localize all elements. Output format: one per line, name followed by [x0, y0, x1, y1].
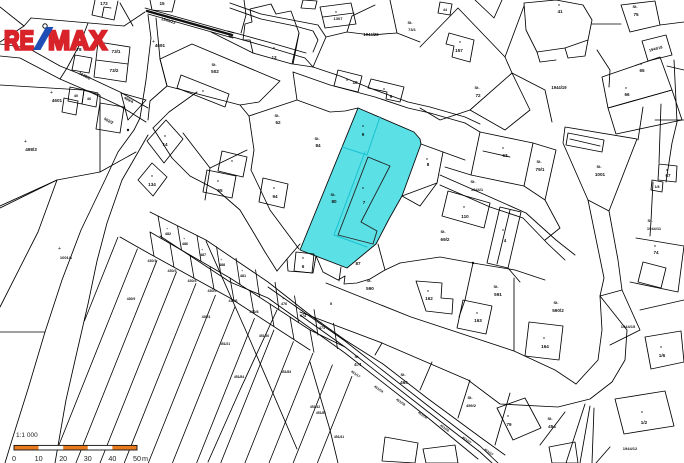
- svg-text:St.: St.: [467, 395, 472, 400]
- svg-text:St.: St.: [632, 4, 637, 9]
- svg-text:591: 591: [494, 292, 502, 297]
- svg-text:73/1: 73/1: [408, 27, 417, 32]
- svg-text:6: 6: [302, 264, 305, 269]
- svg-text:4: 4: [504, 238, 507, 243]
- svg-text:St.: St.: [647, 218, 652, 223]
- svg-text:65: 65: [639, 68, 645, 73]
- svg-text:430/1: 430/1: [148, 259, 157, 263]
- svg-text:474: 474: [300, 314, 307, 318]
- svg-text:75: 75: [633, 12, 639, 17]
- svg-text:40: 40: [108, 454, 116, 463]
- svg-text:10: 10: [352, 80, 358, 85]
- svg-text:St.: St.: [440, 229, 445, 234]
- svg-text:St.: St.: [470, 179, 475, 184]
- svg-text:St.: St.: [366, 278, 371, 283]
- svg-text:590/2: 590/2: [552, 308, 564, 313]
- svg-text:66: 66: [624, 92, 630, 97]
- svg-text:46: 46: [87, 97, 91, 101]
- svg-text:St.: St.: [596, 164, 601, 169]
- svg-text:63: 63: [502, 153, 508, 158]
- svg-text:430/4: 430/4: [202, 315, 211, 319]
- svg-text:162: 162: [425, 296, 433, 301]
- svg-text:1/6: 1/6: [659, 353, 666, 358]
- svg-text:St.: St.: [493, 284, 498, 289]
- svg-text:486: 486: [182, 242, 188, 246]
- svg-text:+: +: [24, 139, 27, 145]
- svg-text:482: 482: [165, 232, 171, 236]
- svg-text:55: 55: [217, 188, 223, 193]
- svg-text:1/8: 1/8: [655, 185, 660, 189]
- svg-text:4691: 4691: [155, 43, 166, 48]
- svg-text:m: m: [142, 454, 148, 463]
- svg-text:St.: St.: [274, 113, 279, 118]
- svg-text:RE: RE: [4, 26, 34, 56]
- svg-text:MAX: MAX: [48, 26, 107, 56]
- svg-text:164: 164: [541, 344, 549, 349]
- svg-text:471: 471: [319, 326, 325, 330]
- svg-text:87: 87: [355, 261, 361, 266]
- svg-text:13: 13: [271, 55, 277, 60]
- svg-text:451/21: 451/21: [220, 342, 230, 346]
- svg-text:69/2: 69/2: [441, 237, 450, 242]
- svg-text:163: 163: [474, 318, 482, 323]
- svg-text:471: 471: [354, 362, 362, 367]
- svg-text:451/84: 451/84: [234, 375, 244, 379]
- svg-text:+: +: [152, 39, 155, 45]
- svg-text:84: 84: [315, 143, 321, 148]
- svg-text:430/8: 430/8: [250, 310, 259, 314]
- svg-text:172: 172: [100, 1, 108, 6]
- svg-text:74: 74: [653, 250, 659, 255]
- svg-text:St.: St.: [407, 20, 412, 25]
- svg-text:9: 9: [390, 94, 393, 99]
- svg-text:41: 41: [557, 9, 563, 14]
- svg-text:14: 14: [162, 142, 168, 147]
- svg-text:1944/12: 1944/12: [623, 446, 638, 451]
- svg-text:73/2: 73/2: [110, 68, 119, 73]
- svg-text:St.: St.: [354, 354, 359, 359]
- svg-text:8: 8: [427, 162, 430, 167]
- svg-text:465: 465: [400, 380, 408, 385]
- svg-text:451/42: 451/42: [310, 405, 320, 409]
- svg-text:80: 80: [331, 199, 337, 204]
- svg-text:44: 44: [443, 8, 447, 12]
- svg-text:134: 134: [148, 182, 156, 187]
- svg-text:0: 0: [12, 454, 16, 463]
- svg-text:488: 488: [219, 263, 225, 267]
- svg-text:40: 40: [74, 94, 78, 98]
- svg-text:476: 476: [281, 302, 287, 306]
- svg-text:430/5: 430/5: [208, 289, 217, 293]
- svg-text:St.: St.: [400, 372, 405, 377]
- svg-text:4601: 4601: [52, 98, 63, 103]
- svg-text:1001/1: 1001/1: [60, 255, 73, 260]
- svg-text:451/83: 451/83: [281, 370, 291, 374]
- svg-text:+: +: [58, 246, 61, 252]
- svg-text:430/4: 430/4: [188, 279, 197, 283]
- svg-text:72: 72: [475, 93, 481, 98]
- svg-text:459/2: 459/2: [466, 403, 477, 408]
- svg-text:St.: St.: [474, 85, 479, 90]
- svg-text:1944/15: 1944/15: [621, 324, 636, 329]
- svg-text:1:1 000: 1:1 000: [16, 432, 38, 439]
- svg-text:110: 110: [461, 214, 469, 219]
- svg-text:7: 7: [363, 200, 366, 205]
- svg-text:487: 487: [200, 253, 206, 257]
- svg-text:30: 30: [84, 454, 92, 463]
- svg-text:St.: St.: [553, 300, 558, 305]
- svg-text:1/2: 1/2: [641, 420, 648, 425]
- svg-text:430/9: 430/9: [127, 297, 136, 301]
- svg-text:St.: St.: [211, 62, 216, 67]
- svg-text:St.: St.: [536, 159, 541, 164]
- svg-text:454: 454: [548, 424, 556, 429]
- svg-text:502: 502: [211, 69, 219, 74]
- svg-text:15: 15: [159, 1, 165, 6]
- svg-text:157: 157: [455, 48, 463, 53]
- svg-text:50: 50: [133, 454, 141, 463]
- svg-text:1307: 1307: [334, 16, 344, 21]
- svg-text:62: 62: [275, 120, 281, 125]
- svg-text:451/41: 451/41: [334, 435, 344, 439]
- svg-text:1944/19: 1944/19: [551, 85, 567, 90]
- svg-text:9: 9: [362, 132, 365, 137]
- svg-text:+: +: [50, 90, 53, 96]
- svg-text:481: 481: [240, 274, 246, 278]
- svg-text:1944/1: 1944/1: [471, 187, 484, 192]
- svg-text:430/3: 430/3: [168, 269, 177, 273]
- svg-text:1944/11: 1944/11: [647, 226, 662, 231]
- svg-text:St.: St.: [547, 416, 552, 421]
- svg-text:10: 10: [35, 454, 43, 463]
- svg-text:73/1: 73/1: [112, 49, 121, 54]
- svg-text:1001: 1001: [595, 172, 606, 177]
- svg-text:67: 67: [665, 173, 671, 178]
- svg-text:79/1: 79/1: [536, 167, 545, 172]
- svg-text:St.: St.: [314, 136, 319, 141]
- svg-text:20: 20: [59, 454, 67, 463]
- svg-text:94: 94: [272, 194, 278, 199]
- svg-text:590: 590: [366, 286, 374, 291]
- svg-text:498/3: 498/3: [25, 147, 37, 152]
- svg-text:79: 79: [506, 422, 512, 427]
- svg-text:St.: St.: [330, 192, 335, 197]
